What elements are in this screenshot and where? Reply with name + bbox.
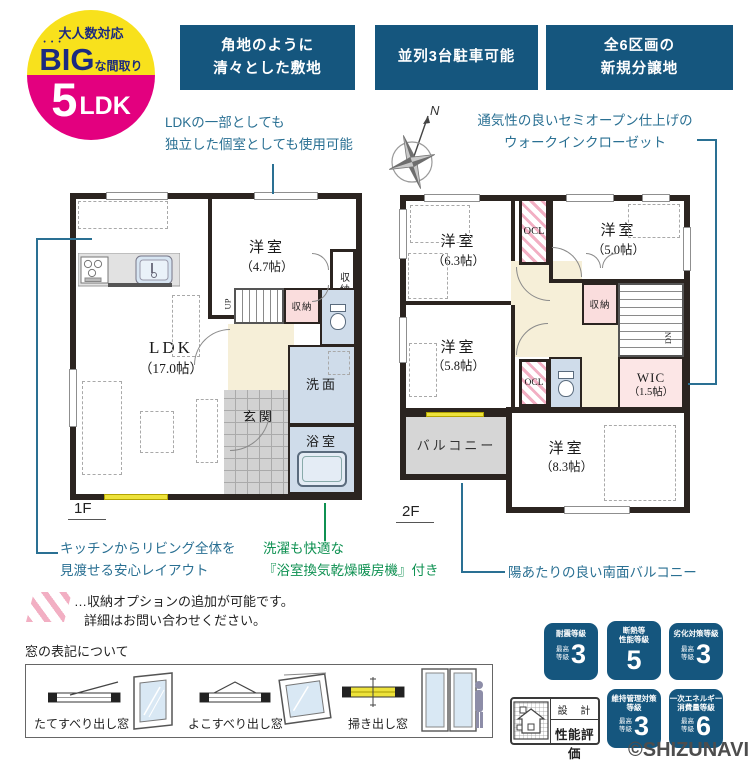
feature-box-corner-lot: 角地のように 清々とした敷地 <box>180 25 355 90</box>
design-performance-stamp: 設 計 性能評価 <box>510 697 600 745</box>
room-2f-yoshitsu-83: 洋室 （8.3帖） <box>506 407 690 513</box>
toilet-2f <box>549 357 582 412</box>
awning-window-illustration <box>276 669 334 731</box>
stairs-1f <box>234 288 284 324</box>
legend-label-2: よこすべり出し窓 <box>188 715 283 732</box>
badge-big-suffix: な間取り <box>95 59 143 73</box>
room-2f-yoshitsu-58: 洋室 （5.8帖） <box>406 305 515 412</box>
bed-outline <box>410 205 470 243</box>
note-flex-room: LDKの一部としても 独立した個室としても使用可能 <box>165 112 353 156</box>
table-outline <box>140 411 174 453</box>
feature-box1-line2: 清々とした敷地 <box>213 58 322 80</box>
window-legend-box: たてすべり出し窓 よこすべり出し窓 <box>25 664 493 738</box>
window-mark <box>683 227 691 271</box>
note-kitchen: キッチンからリビング全体を 見渡せる安心レイアウト <box>60 538 236 582</box>
note-kitchen-line2: 見渡せる安心レイアウト <box>60 560 236 582</box>
sliding-door-illustration <box>420 667 488 735</box>
cupboard-outline <box>78 201 168 229</box>
sofa-outline <box>82 381 122 475</box>
feature-box3-line2: 新規分譲地 <box>601 58 679 80</box>
island-outline <box>172 295 200 357</box>
leader-line-kitchen-top <box>36 238 92 240</box>
feature-box-new-lots: 全6区画の 新規分譲地 <box>546 25 733 90</box>
badge-dannetsu: 断熱等性能等級 5 <box>607 621 661 680</box>
bath-1f: 浴室 <box>288 425 356 494</box>
casement-window-symbol <box>48 681 124 707</box>
house-grid-icon <box>512 699 550 742</box>
awning-window-symbol <box>198 679 274 707</box>
note-wic-line1: 通気性の良いセミオープン仕上げの <box>468 110 702 132</box>
note-balcony: 陽あたりの良い南面バルコニー <box>508 562 697 584</box>
floorplan-flyer: 大人数対応 ••• BIGな間取り 5 LDK 角地のように 清々とした敷地 並… <box>0 0 750 765</box>
sweep-out-window-symbol <box>342 677 406 707</box>
legend-label-1: たてすべり出し窓 <box>34 715 129 732</box>
room-label-ldk: LDK （17.0帖） <box>106 337 236 378</box>
window-yellow-mark <box>104 494 168 500</box>
room-label-83: 洋室 （8.3帖） <box>540 439 593 476</box>
compass-icon: N <box>386 104 442 192</box>
note-bath: 洗濯も快適な 『浴室換気乾燥暖房機』付き <box>263 538 439 582</box>
window-mark <box>106 192 168 200</box>
ocl-closet-top: OCL <box>519 201 549 265</box>
note-wic-line2: ウォークインクローゼット <box>468 132 702 154</box>
genkan-1f: 玄関 <box>224 390 294 494</box>
badge-top-half: 大人数対応 ••• BIGな間取り <box>27 10 155 75</box>
hall-2f-corridor <box>582 325 618 412</box>
note-wic: 通気性の良いセミオープン仕上げの ウォークインクローゼット <box>468 110 702 154</box>
note-bath-line1: 洗濯も快適な <box>263 538 439 560</box>
badge-number: 5 <box>51 76 77 123</box>
note-option-line2: 詳細はお問い合わせください。 <box>74 611 294 630</box>
wic-2f: WIC （1.5帖） <box>618 357 684 412</box>
closet-2f: 収納 <box>582 283 618 325</box>
badge-taishin: 耐震等級 最高等級 3 <box>544 623 598 680</box>
compass-n-label: N <box>430 104 440 118</box>
legend-label-3: 掃き出し窓 <box>348 715 408 732</box>
leader-line-flex-room <box>272 164 274 194</box>
stairs-2f <box>618 283 684 357</box>
stairs-dn-label: DN <box>663 332 673 344</box>
bathtub-icon <box>297 451 347 487</box>
room-2f-yoshitsu-50: 洋室 （5.0帖） <box>549 201 684 283</box>
window-mark <box>564 506 630 514</box>
bed-outline <box>408 253 448 299</box>
room-2f-yoshitsu-63: 洋室 （6.3帖） <box>406 201 515 305</box>
toilet-icon <box>558 371 574 397</box>
big-5ldk-badge: 大人数対応 ••• BIGな間取り 5 LDK <box>27 10 155 140</box>
note-option-line1: …収納オプションの追加が可能です。 <box>74 592 294 611</box>
stamp-bottom-label: 性能評価 <box>551 720 598 762</box>
leader-line-wic-vert <box>715 139 717 385</box>
leader-line-balcony-horiz <box>461 571 505 573</box>
emphasis-dots: ••• <box>43 39 65 46</box>
window-mark <box>254 192 318 200</box>
washer-outline <box>328 351 350 375</box>
legend-title: 窓の表記について <box>25 641 129 660</box>
kitchen-counter <box>78 253 180 289</box>
feature-box3-line1: 全6区画の <box>604 35 675 57</box>
bed-outline <box>628 204 680 238</box>
leader-line-bath <box>324 503 326 541</box>
note-storage-option: …収納オプションの追加が可能です。 詳細はお問い合わせください。 <box>74 592 294 630</box>
feature-box-parking: 並列3台駐車可能 <box>375 25 538 90</box>
leader-line-wic-bottom <box>688 383 717 385</box>
closet-1f-b: 収納 <box>284 288 320 324</box>
window-mark <box>566 194 614 202</box>
leader-line-balcony-vert <box>461 483 463 573</box>
leader-line-wic-top <box>697 139 717 141</box>
note-flex-line2: 独立した個室としても使用可能 <box>165 134 353 156</box>
window-mark <box>642 194 670 202</box>
floor-label-2f: 2F <box>396 503 434 523</box>
leader-line-kitchen-vert <box>36 238 38 554</box>
note-kitchen-line1: キッチンからリビング全体を <box>60 538 236 560</box>
window-mark <box>424 194 480 202</box>
senmen-1f: 洗面 <box>288 345 356 425</box>
floorplan-1f: LDK （17.0帖） 洋室 （4.7帖） 収納 <box>70 193 362 500</box>
toilet-icon <box>330 304 346 330</box>
feature-box2-line1: 並列3台駐車可能 <box>398 46 516 68</box>
floor-label-1f: 1F <box>68 500 106 520</box>
toilet-1f <box>320 288 356 346</box>
badge-big-word: BIG <box>39 42 94 77</box>
desk-outline <box>409 343 437 397</box>
stairs-up-label: UP <box>222 299 232 310</box>
counter-outline <box>196 399 218 463</box>
stamp-top-label: 設 計 <box>551 699 598 720</box>
window-mark <box>399 317 407 363</box>
casement-window-illustration <box>128 671 178 731</box>
badge-top-label: 大人数対応 <box>27 10 155 42</box>
window-yellow-mark <box>426 412 484 417</box>
balcony-2f: バルコニー <box>406 412 512 474</box>
hall-1f <box>228 324 294 390</box>
bed-outline <box>604 425 676 501</box>
badge-bottom-half: 5 LDK <box>27 75 155 140</box>
note-balcony-line: 陽あたりの良い南面バルコニー <box>508 562 697 584</box>
feature-box1-line1: 角地のように <box>221 35 314 57</box>
note-flex-line1: LDKの一部としても <box>165 112 353 134</box>
ocl-closet-bottom: OCL <box>519 359 549 407</box>
badge-rekka: 劣化対策等級 最高等級 3 <box>669 623 723 680</box>
copyright-text: ©SHIZUNAVI <box>628 739 749 762</box>
storage-option-hatch-swatch <box>26 592 72 622</box>
badge-ldk: LDK <box>79 92 130 121</box>
window-mark <box>69 369 77 427</box>
leader-line-kitchen-bottom <box>36 552 58 554</box>
window-mark <box>399 209 407 259</box>
note-bath-line2: 『浴室換気乾燥暖房機』付き <box>263 560 439 582</box>
